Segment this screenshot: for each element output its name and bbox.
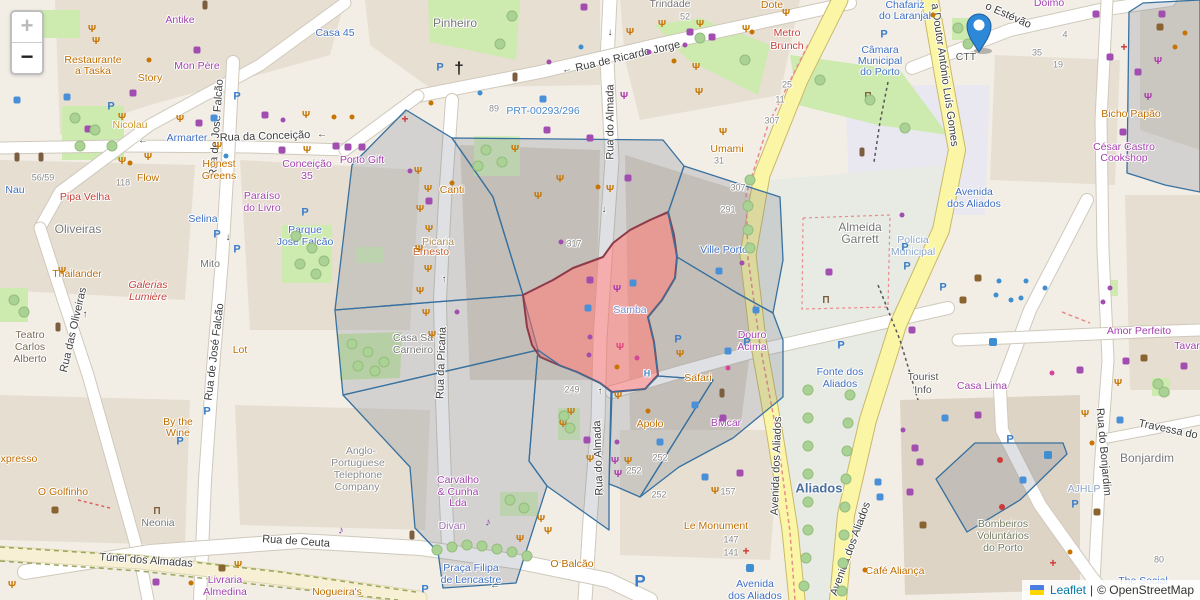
zoom-control: + − bbox=[10, 10, 44, 75]
zoom-in-button[interactable]: + bbox=[12, 12, 42, 43]
dashed-line bbox=[1062, 312, 1090, 323]
marker-pin-hole bbox=[974, 20, 985, 31]
map-marker[interactable] bbox=[957, 4, 1001, 61]
road bbox=[0, 553, 420, 598]
map-area bbox=[282, 225, 332, 283]
zoom-out-button[interactable]: − bbox=[12, 43, 42, 73]
ukraine-flag-icon bbox=[1030, 585, 1044, 595]
voronoi-cell-top-right[interactable] bbox=[1127, 0, 1200, 192]
road bbox=[1108, 420, 1200, 438]
map-canvas[interactable]: Rua da Conceição←←Rua de Ricardo Jorge←R… bbox=[0, 0, 1200, 600]
map-area bbox=[0, 160, 195, 300]
road bbox=[0, 146, 345, 150]
map-area bbox=[0, 288, 28, 322]
osm-attribution: © OpenStreetMap bbox=[1097, 580, 1194, 600]
map-base-layer bbox=[0, 0, 1200, 600]
attribution-bar: Leaflet | © OpenStreetMap bbox=[1022, 580, 1200, 600]
map-area bbox=[1125, 195, 1200, 390]
attribution-separator: | bbox=[1090, 580, 1093, 600]
leaflet-link[interactable]: Leaflet bbox=[1050, 580, 1086, 600]
map-area bbox=[1152, 378, 1170, 396]
